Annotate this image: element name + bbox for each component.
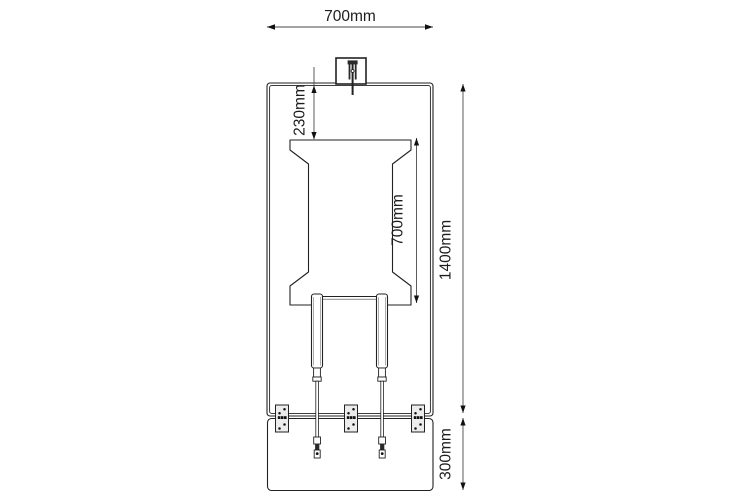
arrow-up — [460, 418, 465, 426]
dim-label-base-height: 300mm — [438, 428, 455, 480]
plate-bolt — [347, 412, 350, 415]
mount-box — [336, 58, 366, 95]
damper-right-anchor-bolt — [381, 452, 384, 455]
plate-clamp — [347, 416, 350, 419]
damper-right-cap — [378, 377, 386, 381]
plate-bolt — [352, 423, 355, 426]
arrow-up — [414, 138, 419, 146]
damper-right-rod — [381, 381, 384, 437]
damper-right-anchor-top — [379, 437, 386, 444]
arrow-left — [267, 24, 275, 30]
plate-bolt — [278, 427, 281, 430]
damper-right-collar — [379, 368, 386, 377]
dim-base-height: 300mm — [438, 418, 466, 490]
dim-overall-width: 700mm — [267, 8, 433, 30]
dim-label-top-offset: 230mm — [292, 84, 309, 136]
plate-bolt — [352, 408, 355, 411]
dim-overall-height: 1400mm — [438, 84, 466, 413]
plate-bolt — [419, 408, 422, 411]
arrow-down — [460, 406, 465, 414]
arrow-up — [460, 84, 465, 92]
damper-link-plate — [321, 297, 379, 329]
plate-bolt — [414, 412, 417, 415]
plate-bolt — [414, 427, 417, 430]
plate-clamp — [350, 416, 353, 419]
damper-left-anchor-top — [314, 437, 321, 444]
damper-left-anchor-bolt — [316, 452, 319, 455]
assembly-drawing: 700mm 230mm 700mm 1400mm 300mm — [0, 0, 750, 500]
mount-pin-hole — [351, 70, 354, 73]
arrow-down — [460, 483, 465, 491]
plate-bolt — [283, 423, 286, 426]
plate-bolt — [278, 412, 281, 415]
damper-right-tube — [377, 294, 388, 368]
arrow-down — [414, 296, 419, 304]
dim-label-girder-height: 700mm — [390, 194, 407, 246]
plate-clamp — [420, 416, 423, 419]
arrow-down — [311, 132, 316, 140]
damper-left-tube — [312, 294, 323, 368]
plate-clamp — [284, 416, 287, 419]
plate-clamp — [417, 416, 420, 419]
plate-clamp — [278, 416, 281, 419]
dim-top-offset: 230mm — [292, 67, 317, 140]
plate-clamp — [281, 416, 284, 419]
drawing-canvas: 700mm 230mm 700mm 1400mm 300mm — [0, 0, 750, 500]
dim-label-overall-width: 700mm — [324, 8, 376, 25]
plate-bolt — [419, 423, 422, 426]
plate-bolt — [283, 408, 286, 411]
anchor-plate-left — [276, 405, 289, 432]
damper-left-anchor-mid — [315, 444, 319, 450]
anchor-plate-right — [412, 405, 425, 432]
plate-bolt — [347, 427, 350, 430]
dim-label-overall-height: 1400mm — [438, 220, 455, 280]
damper-right-anchor-mid — [380, 444, 384, 450]
mount-pin-cap — [348, 60, 358, 64]
arrow-right — [425, 24, 433, 30]
plate-clamp — [353, 416, 356, 419]
damper-left-rod — [316, 381, 319, 437]
plate-clamp — [414, 416, 417, 419]
damper-left-cap — [313, 377, 321, 381]
damper-left-collar — [314, 368, 321, 377]
arrow-up — [311, 86, 316, 94]
anchor-plate-center — [345, 405, 358, 432]
